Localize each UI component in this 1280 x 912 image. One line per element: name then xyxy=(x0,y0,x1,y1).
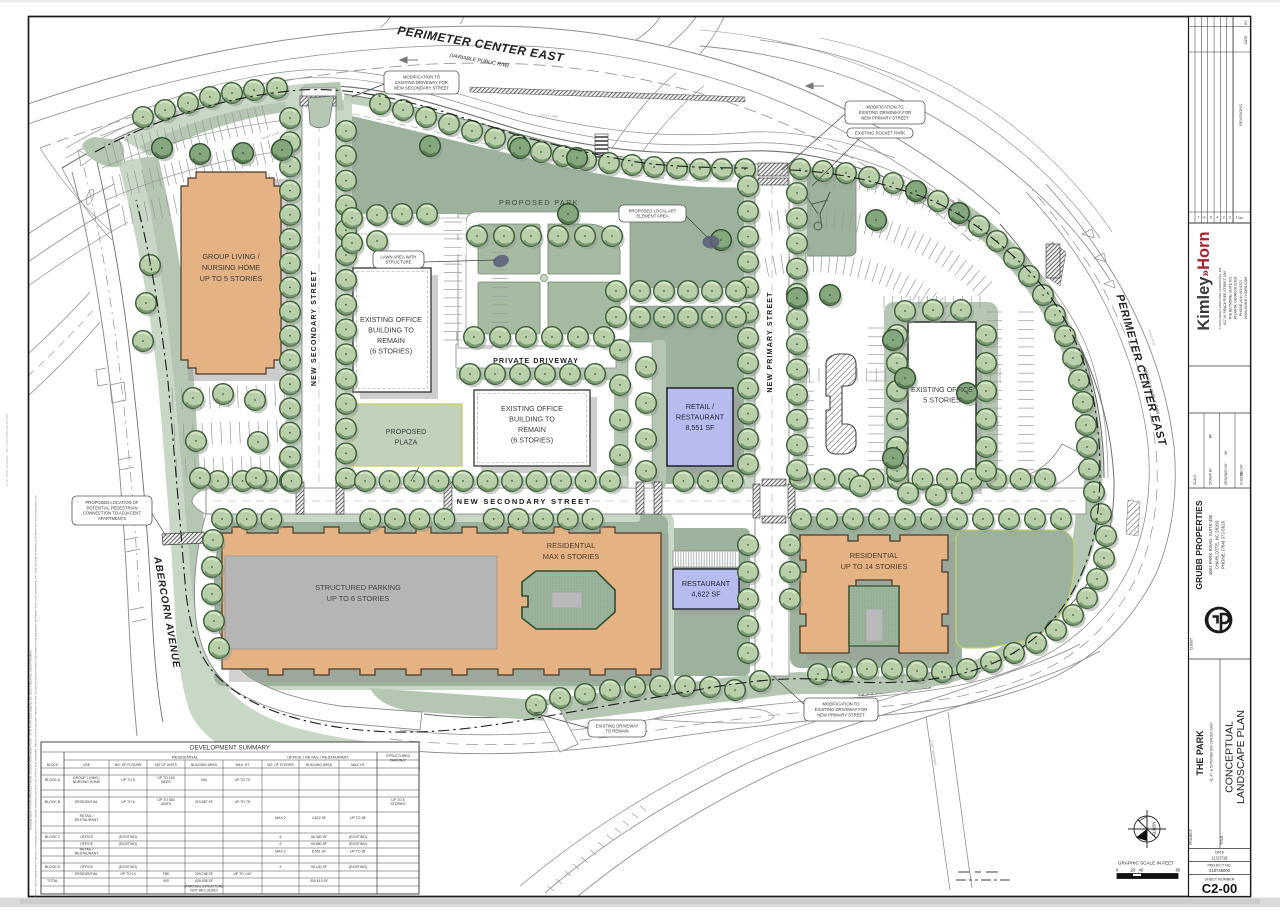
svg-text:RESIDENTIAL: RESIDENTIAL xyxy=(850,551,898,560)
svg-text:MAX. HT: MAX. HT xyxy=(351,763,365,767)
svg-text:OFFICE: OFFICE xyxy=(80,842,93,846)
svg-text:UP TO 6 STORIES: UP TO 6 STORIES xyxy=(327,594,390,603)
svg-text:EXISTING OFFICE: EXISTING OFFICE xyxy=(911,385,973,394)
svg-text:STRUCTURED: STRUCTURED xyxy=(386,754,411,758)
svg-text:STORIES: STORIES xyxy=(390,802,406,806)
svg-text:BY: BY xyxy=(1244,20,1248,25)
svg-text:1: 1 xyxy=(1235,216,1237,220)
svg-text:UP TO 70': UP TO 70' xyxy=(234,778,250,782)
svg-text:UP TO 75': UP TO 75' xyxy=(234,800,250,804)
svg-text:(6 STORIES): (6 STORIES) xyxy=(511,436,553,445)
svg-text:428,935 SF: 428,935 SF xyxy=(195,879,213,883)
svg-text:PLAZA: PLAZA xyxy=(395,438,418,447)
svg-text:5 STORIES: 5 STORIES xyxy=(923,396,961,405)
svg-text:NO. OF FLOORS: NO. OF FLOORS xyxy=(267,763,294,767)
svg-text:UP TO 35': UP TO 35' xyxy=(350,816,366,820)
svg-text:THE PARK: THE PARK xyxy=(1195,730,1205,776)
svg-text:EXISTING DRIVEWAY: EXISTING DRIVEWAY xyxy=(596,723,639,728)
svg-text:PROPOSED LOCAL ART: PROPOSED LOCAL ART xyxy=(629,208,677,213)
svg-text:PROPOSED LOCATION OF: PROPOSED LOCATION OF xyxy=(86,500,139,505)
svg-text:20: 20 xyxy=(1131,868,1136,873)
svg-text:ELEMENT AREA: ELEMENT AREA xyxy=(636,214,668,219)
svg-text:MAX 2: MAX 2 xyxy=(275,850,286,854)
svg-text:219,687 SF: 219,687 SF xyxy=(195,800,213,804)
svg-text:OFFICE: OFFICE xyxy=(80,835,93,839)
svg-text:5: 5 xyxy=(280,865,282,869)
svg-text:PHONE (404) 419-8700: PHONE (404) 419-8700 xyxy=(1239,280,1243,316)
svg-text:WWW.KIMLEY-HORN.COM: WWW.KIMLEY-HORN.COM xyxy=(1244,277,1248,320)
svg-text:BLOCK: BLOCK xyxy=(47,763,59,767)
svg-text:3: 3 xyxy=(1223,216,1225,220)
svg-text:EXISTING DRIVEWAY FOR: EXISTING DRIVEWAY FOR xyxy=(395,80,448,85)
svg-text:TITLE: TITLE xyxy=(1220,835,1224,845)
svg-text:RESTAURANT: RESTAURANT xyxy=(75,818,99,822)
svg-text:MAX 6 STORIES: MAX 6 STORIES xyxy=(543,552,600,561)
svg-text:BUILDING AREA: BUILDING AREA xyxy=(191,763,218,767)
svg-text:BUILDING TO: BUILDING TO xyxy=(368,326,414,335)
svg-text:CLIENT: CLIENT xyxy=(1190,638,1194,650)
svg-text:NURSING HOME: NURSING HOME xyxy=(73,780,101,784)
svg-text:CHARLOTTE, NC 28209: CHARLOTTE, NC 28209 xyxy=(1214,520,1219,569)
svg-text:UP TO 5: UP TO 5 xyxy=(121,778,134,782)
svg-text:DRAWN BY: DRAWN BY xyxy=(1209,467,1213,485)
svg-text:EXISTING OFFICE: EXISTING OFFICE xyxy=(501,404,563,413)
svg-text:JH: JH xyxy=(1224,450,1228,455)
svg-text:USE: USE xyxy=(83,763,91,767)
svg-text:RESIDENTIAL: RESIDENTIAL xyxy=(75,800,98,804)
svg-text:UP TO 14 STORIES: UP TO 14 STORIES xyxy=(841,562,908,571)
svg-text:NO OF UNITS: NO OF UNITS xyxy=(155,763,178,767)
svg-text:BLOCK A: BLOCK A xyxy=(45,778,61,782)
svg-text:DEVELOPMENT SUMMARY: DEVELOPMENT SUMMARY xyxy=(190,745,270,752)
svg-text:EXISTING DRIVEWAY FOR: EXISTING DRIVEWAY FOR xyxy=(815,707,868,712)
svg-text:8,551 SF: 8,551 SF xyxy=(312,850,326,854)
svg-text:OFFICE / RETAIL / RESTAURANT: OFFICE / RETAIL / RESTAURANT xyxy=(287,754,349,759)
svg-text:THE BILTMORE, SUITE 601: THE BILTMORE, SUITE 601 xyxy=(1228,276,1232,319)
svg-text:95,130 SF: 95,130 SF xyxy=(311,865,327,869)
svg-text:TBD: TBD xyxy=(163,872,170,876)
svg-text:4,622 SF: 4,622 SF xyxy=(312,816,326,820)
svg-text:RESIDENTIAL: RESIDENTIAL xyxy=(547,541,595,550)
svg-text:SCALE: SCALE xyxy=(1193,475,1197,485)
svg-text:BLOCK B: BLOCK B xyxy=(45,800,61,804)
svg-text:LAWN AREA WITH: LAWN AREA WITH xyxy=(381,254,417,259)
svg-text:NORTH: NORTH xyxy=(1152,822,1157,837)
svg-text:NEW PRIMARY STREET: NEW PRIMARY STREET xyxy=(861,115,909,120)
svg-text:CONNECTION TO ADJACENT: CONNECTION TO ADJACENT xyxy=(83,511,141,516)
svg-text:TO REMAIN: TO REMAIN xyxy=(605,729,628,734)
svg-text:4,622 SF: 4,622 SF xyxy=(691,590,721,599)
svg-text:PARKING*: PARKING* xyxy=(390,759,407,763)
svg-text:© 2018 KIMLEY-HORN AND ASSOCIA: © 2018 KIMLEY-HORN AND ASSOCIATES, INC. xyxy=(1218,266,1222,329)
svg-text:RESTAURANT: RESTAURANT xyxy=(682,579,731,588)
svg-text:MODIFICATION TO: MODIFICATION TO xyxy=(867,105,905,110)
svg-text:No.: No. xyxy=(1238,216,1243,220)
svg-text:DATE: DATE xyxy=(1215,851,1225,855)
svg-text:PRIVATE DRIVEWAY: PRIVATE DRIVEWAY xyxy=(493,356,579,365)
svg-text:NEW PRIMARY STREET: NEW PRIMARY STREET xyxy=(767,291,774,392)
svg-text:EXISTING DRIVEWAY FOR: EXISTING DRIVEWAY FOR xyxy=(859,110,912,115)
svg-text:40: 40 xyxy=(1139,868,1144,873)
svg-text:8,551 SF: 8,551 SF xyxy=(685,423,715,432)
svg-text:GROUP LIVING /: GROUP LIVING / xyxy=(202,252,260,261)
svg-text:NEW PRIMARY STREET: NEW PRIMARY STREET xyxy=(817,712,865,717)
svg-text:6: 6 xyxy=(1204,216,1206,220)
svg-text:BEDS: BEDS xyxy=(161,780,171,784)
svg-text:CONCEPTUAL: CONCEPTUAL xyxy=(1224,721,1236,793)
svg-text:NEW SECONDARY STREET: NEW SECONDARY STREET xyxy=(457,497,592,506)
svg-text:OFFICE: OFFICE xyxy=(80,865,93,869)
svg-text:PHONE: (704) 372-5616: PHONE: (704) 372-5616 xyxy=(1221,520,1226,569)
svg-text:MAX 2: MAX 2 xyxy=(275,816,286,820)
svg-text:BLOCK C: BLOCK C xyxy=(45,835,61,839)
svg-text:BF: BF xyxy=(1209,434,1213,438)
svg-text:817 W. PEACHTREE STREET, NW: 817 W. PEACHTREE STREET, NW xyxy=(1223,270,1227,324)
svg-text:This document, together with t: This document, together with the concept… xyxy=(34,494,38,907)
svg-text:C2-00: C2-00 xyxy=(1202,881,1237,896)
svg-text:N/A: N/A xyxy=(201,778,208,782)
svg-text:DATE: DATE xyxy=(1244,35,1248,45)
svg-text:80: 80 xyxy=(1176,868,1181,873)
svg-text:UNITS: UNITS xyxy=(161,802,172,806)
svg-text:PLOT DATE 4/26/2022 - NOT FOR: PLOT DATE 4/26/2022 - NOT FOR CONSTRUCTI… xyxy=(5,414,9,486)
svg-text:4601 PARK ROAD, SUITE 450: 4601 PARK ROAD, SUITE 450 xyxy=(1208,514,1213,575)
svg-text:UP TO 6: UP TO 6 xyxy=(121,800,134,804)
svg-text:(EXISTING): (EXISTING) xyxy=(119,842,138,846)
svg-text:NEW SECONDARY STREET: NEW SECONDARY STREET xyxy=(394,85,449,90)
svg-text:PROPOSED PARK: PROPOSED PARK xyxy=(499,198,579,207)
svg-text:BUILDING AREA: BUILDING AREA xyxy=(306,763,333,767)
svg-text:95,850 SF: 95,850 SF xyxy=(311,842,327,846)
svg-text:(EXISTING): (EXISTING) xyxy=(349,842,368,846)
svg-text:(6 STORIES): (6 STORIES) xyxy=(370,347,412,356)
svg-text:JH: JH xyxy=(1240,471,1244,476)
svg-text:DESIGNED BY: DESIGNED BY xyxy=(1224,462,1228,485)
svg-text:(EXISTING): (EXISTING) xyxy=(349,865,368,869)
svg-text:UP TO 35': UP TO 35' xyxy=(350,850,366,854)
svg-text:POTENTIAL PEDESTRIAN: POTENTIAL PEDESTRIAN xyxy=(86,505,137,510)
svg-text:REVISIONS: REVISIONS xyxy=(1238,104,1243,126)
svg-text:900: 900 xyxy=(163,879,169,883)
svg-text:TOTAL: TOTAL xyxy=(47,879,58,883)
svg-text:NEW SECONDARY STREET: NEW SECONDARY STREET xyxy=(311,270,318,386)
svg-text:APARTMENTS: APARTMENTS xyxy=(98,516,126,521)
svg-text:4: 4 xyxy=(1216,216,1218,220)
svg-text:BLOCK D: BLOCK D xyxy=(45,865,61,869)
svg-text:6: 6 xyxy=(280,835,282,839)
svg-text:EXISTING OFFICE: EXISTING OFFICE xyxy=(360,315,422,324)
svg-text:(EXISTING): (EXISTING) xyxy=(349,835,368,839)
svg-text:PROJECT NO.: PROJECT NO. xyxy=(1207,864,1231,868)
svg-text:REMAIN: REMAIN xyxy=(518,425,546,434)
svg-text:ATLANTA, GEORGIA 30308: ATLANTA, GEORGIA 30308 xyxy=(1234,277,1238,320)
svg-text:96,360 SF: 96,360 SF xyxy=(311,835,327,839)
svg-text:UP TO 5 STORIES: UP TO 5 STORIES xyxy=(200,274,263,283)
svg-text:REMAIN: REMAIN xyxy=(377,336,405,345)
svg-text:(EXISTING): (EXISTING) xyxy=(119,835,138,839)
svg-text:EXISTING POCKET PARK: EXISTING POCKET PARK xyxy=(855,130,905,135)
svg-text:Drawing name: K:\ALP_PRU\01874: Drawing name: K:\ALP_PRU\018748000_PCEC\… xyxy=(29,650,33,830)
svg-text:NOT INCLUDED): NOT INCLUDED) xyxy=(190,889,217,893)
svg-text:RESIDENTIAL: RESIDENTIAL xyxy=(172,754,199,759)
svg-text:PROJECT:: PROJECT: xyxy=(1189,829,1193,845)
svg-text:7: 7 xyxy=(1197,216,1199,220)
svg-text:UP TO 140': UP TO 140' xyxy=(234,872,252,876)
svg-text:300,513 SF: 300,513 SF xyxy=(310,879,328,883)
svg-text:LANDSCAPE PLAN: LANDSCAPE PLAN xyxy=(1235,710,1247,804)
svg-text:11/27/18: 11/27/18 xyxy=(1212,856,1229,861)
svg-text:GRAPHIC SCALE IN FEET: GRAPHIC SCALE IN FEET xyxy=(1118,861,1174,866)
svg-text:41, 47, & 53 PERIMETER CENTER: 41, 47, & 53 PERIMETER CENTER EAST xyxy=(1210,722,1214,782)
svg-text:6: 6 xyxy=(280,842,282,846)
svg-text:MODIFICATION TO: MODIFICATION TO xyxy=(403,75,441,80)
svg-text:RETAIL /: RETAIL / xyxy=(686,402,714,411)
svg-text:5: 5 xyxy=(1210,216,1212,220)
svg-text:STRUCTURE: STRUCTURE xyxy=(386,260,412,265)
svg-text:RESTAURANT: RESTAURANT xyxy=(676,413,725,422)
svg-text:RESTAURANT: RESTAURANT xyxy=(75,852,99,856)
svg-text:BUILDING TO: BUILDING TO xyxy=(509,415,555,424)
svg-text:MODIFICATION TO: MODIFICATION TO xyxy=(823,702,861,707)
svg-text:NO. OF FLOORS: NO. OF FLOORS xyxy=(115,763,142,767)
svg-text:Kimley»Horn: Kimley»Horn xyxy=(1195,231,1213,330)
svg-text:RESIDENTIAL: RESIDENTIAL xyxy=(75,872,98,876)
svg-text:NURSING HOME: NURSING HOME xyxy=(202,263,260,272)
svg-text:STRUCTURED PARKING: STRUCTURED PARKING xyxy=(315,583,401,592)
svg-text:2: 2 xyxy=(1229,216,1231,220)
svg-text:PROPOSED: PROPOSED xyxy=(386,427,427,436)
svg-text:UP TO 14: UP TO 14 xyxy=(120,872,135,876)
svg-text:GRUBB PROPERTIES: GRUBB PROPERTIES xyxy=(1194,500,1204,590)
svg-text:MAX. HT: MAX. HT xyxy=(236,763,250,767)
svg-text:(EXISTING): (EXISTING) xyxy=(119,865,138,869)
svg-text:018748000: 018748000 xyxy=(1209,868,1231,873)
svg-text:209,248 SF: 209,248 SF xyxy=(195,872,213,876)
